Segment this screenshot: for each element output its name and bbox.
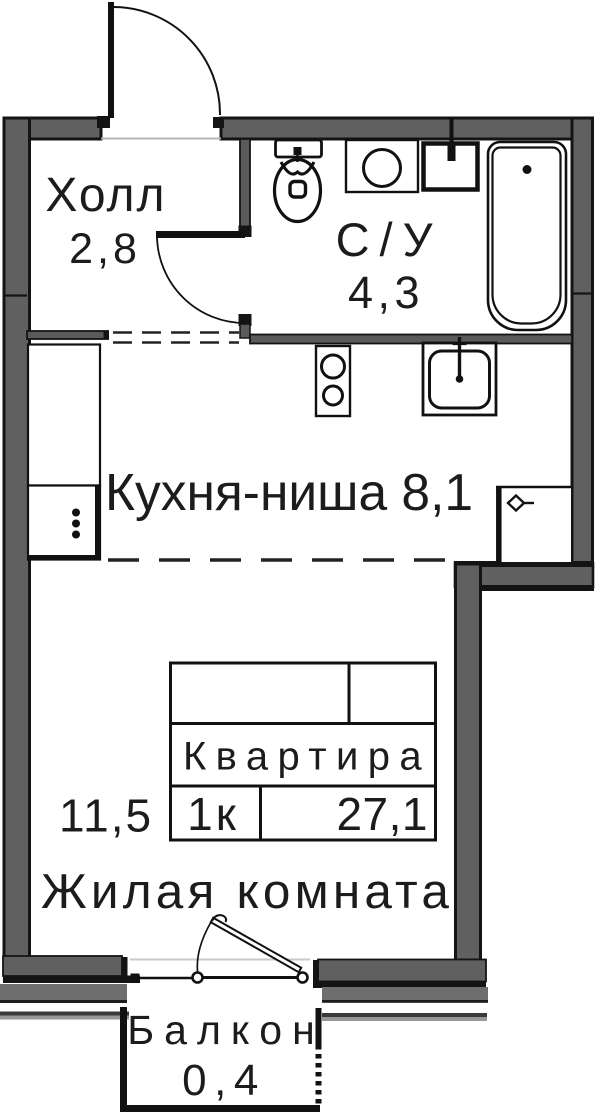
svg-text:0,4: 0,4 [182, 1056, 266, 1105]
svg-text:Холл: Холл [45, 169, 166, 222]
svg-text:С/У: С/У [336, 213, 443, 266]
svg-text:11,5: 11,5 [59, 790, 153, 842]
svg-text:27,1: 27,1 [336, 788, 428, 840]
svg-text:1к: 1к [187, 788, 239, 840]
svg-text:2,8: 2,8 [69, 225, 141, 273]
svg-text:Балкон: Балкон [127, 1007, 324, 1053]
svg-text:Квартира: Квартира [183, 735, 431, 779]
svg-text:4,3: 4,3 [348, 267, 424, 318]
svg-text:Кухня-ниша 8,1: Кухня-ниша 8,1 [105, 463, 473, 521]
svg-text:Жилая комната: Жилая комната [41, 864, 453, 919]
